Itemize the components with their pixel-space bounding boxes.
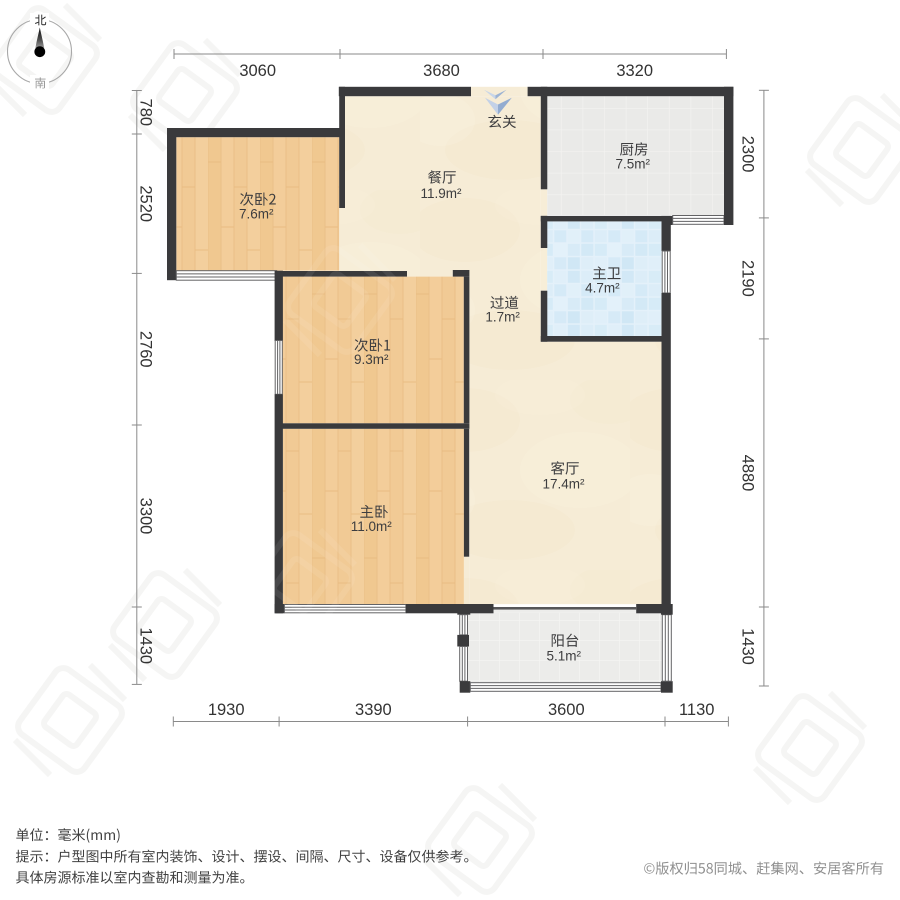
- svg-text:3300: 3300: [137, 498, 155, 535]
- svg-text:11.9m²: 11.9m²: [420, 186, 462, 201]
- svg-text:1430: 1430: [137, 627, 155, 664]
- svg-text:17.4m²: 17.4m²: [542, 477, 585, 492]
- svg-text:7.6m²: 7.6m²: [239, 206, 274, 221]
- svg-text:2520: 2520: [137, 185, 155, 222]
- svg-text:1930: 1930: [208, 701, 245, 719]
- svg-text:5.1m²: 5.1m²: [546, 649, 581, 664]
- svg-text:1.7m²: 1.7m²: [485, 309, 520, 324]
- svg-text:3320: 3320: [616, 62, 653, 80]
- svg-text:2760: 2760: [137, 331, 155, 368]
- svg-text:2190: 2190: [739, 260, 757, 297]
- svg-text:780: 780: [137, 99, 155, 127]
- svg-text:11.0m²: 11.0m²: [351, 519, 393, 534]
- svg-text:3390: 3390: [355, 701, 392, 719]
- svg-text:2300: 2300: [739, 136, 757, 173]
- svg-text:4.7m²: 4.7m²: [585, 280, 620, 295]
- svg-text:4880: 4880: [739, 455, 757, 492]
- svg-text:3680: 3680: [423, 62, 460, 80]
- svg-text:1430: 1430: [739, 628, 757, 665]
- svg-text:1130: 1130: [679, 701, 714, 719]
- svg-text:9.3m²: 9.3m²: [354, 352, 389, 367]
- svg-text:3060: 3060: [239, 62, 276, 80]
- svg-text:7.5m²: 7.5m²: [615, 156, 650, 171]
- svg-text:3600: 3600: [548, 701, 585, 719]
